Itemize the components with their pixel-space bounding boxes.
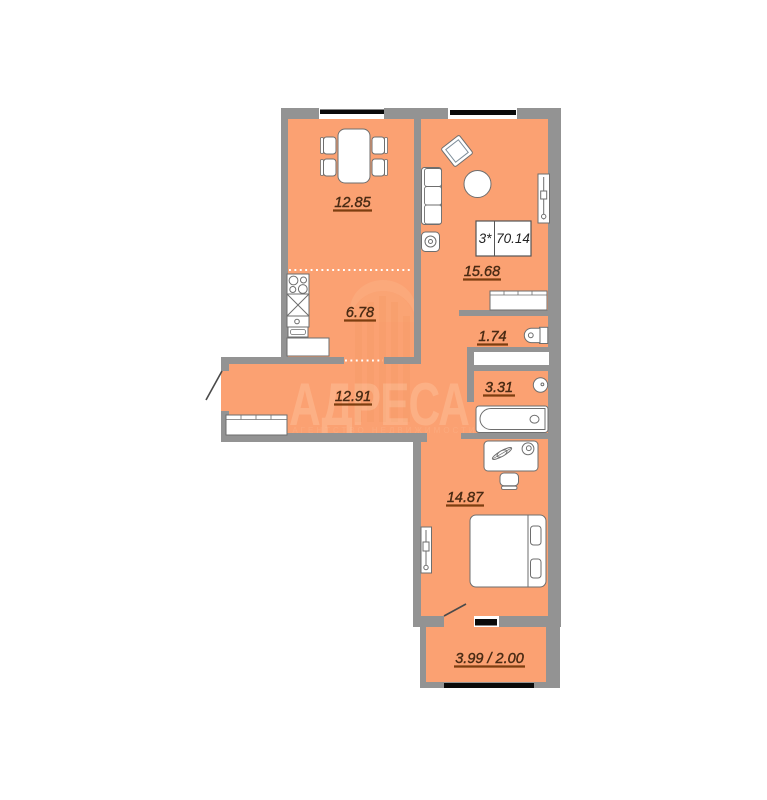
svg-text:1.74: 1.74 [478,329,506,345]
svg-text:14.87: 14.87 [447,490,484,506]
svg-text:12.85: 12.85 [334,195,371,211]
svg-text:15.68: 15.68 [464,264,500,280]
svg-text:3.99 / 2.00: 3.99 / 2.00 [455,651,524,667]
svg-text:6.78: 6.78 [346,305,374,321]
svg-text:12.91: 12.91 [335,389,371,405]
svg-text:70.14: 70.14 [496,231,530,246]
svg-text:3*: 3* [479,231,493,246]
svg-text:3.31: 3.31 [485,380,513,396]
